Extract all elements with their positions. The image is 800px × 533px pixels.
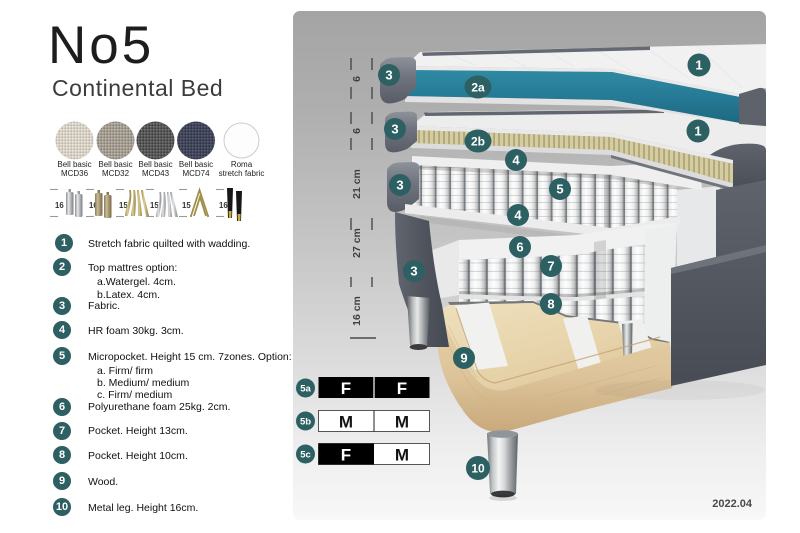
- svg-text:21 cm: 21 cm: [351, 169, 363, 199]
- svg-text:4: 4: [514, 208, 522, 223]
- svg-text:6: 6: [351, 76, 363, 82]
- svg-text:5c: 5c: [300, 450, 311, 461]
- svg-text:7: 7: [547, 259, 554, 274]
- svg-text:3: 3: [391, 122, 398, 137]
- svg-text:4: 4: [512, 153, 520, 168]
- svg-text:M: M: [339, 413, 353, 432]
- svg-text:5a: 5a: [300, 384, 311, 395]
- svg-text:F: F: [341, 379, 351, 398]
- svg-text:9: 9: [460, 351, 467, 366]
- svg-text:F: F: [341, 446, 351, 465]
- svg-text:5: 5: [556, 182, 563, 197]
- svg-text:10: 10: [471, 462, 485, 476]
- svg-text:2b: 2b: [471, 135, 485, 149]
- svg-text:8: 8: [547, 297, 554, 312]
- svg-text:16: 16: [219, 201, 228, 210]
- svg-text:M: M: [395, 413, 409, 432]
- svg-text:1: 1: [695, 58, 702, 73]
- svg-text:5b: 5b: [300, 417, 311, 428]
- svg-text:3: 3: [385, 68, 392, 83]
- svg-text:M: M: [395, 446, 409, 465]
- svg-text:2a: 2a: [471, 81, 485, 95]
- svg-text:1: 1: [694, 124, 701, 139]
- svg-text:3: 3: [410, 264, 417, 279]
- svg-text:F: F: [397, 379, 407, 398]
- svg-text:3: 3: [396, 178, 403, 193]
- svg-text:6: 6: [351, 128, 363, 134]
- svg-text:15: 15: [182, 201, 191, 210]
- svg-text:27 cm: 27 cm: [351, 228, 363, 258]
- svg-text:16 cm: 16 cm: [351, 296, 363, 326]
- svg-text:2022.04: 2022.04: [712, 498, 753, 510]
- svg-text:6: 6: [516, 240, 523, 255]
- svg-text:16: 16: [55, 201, 64, 210]
